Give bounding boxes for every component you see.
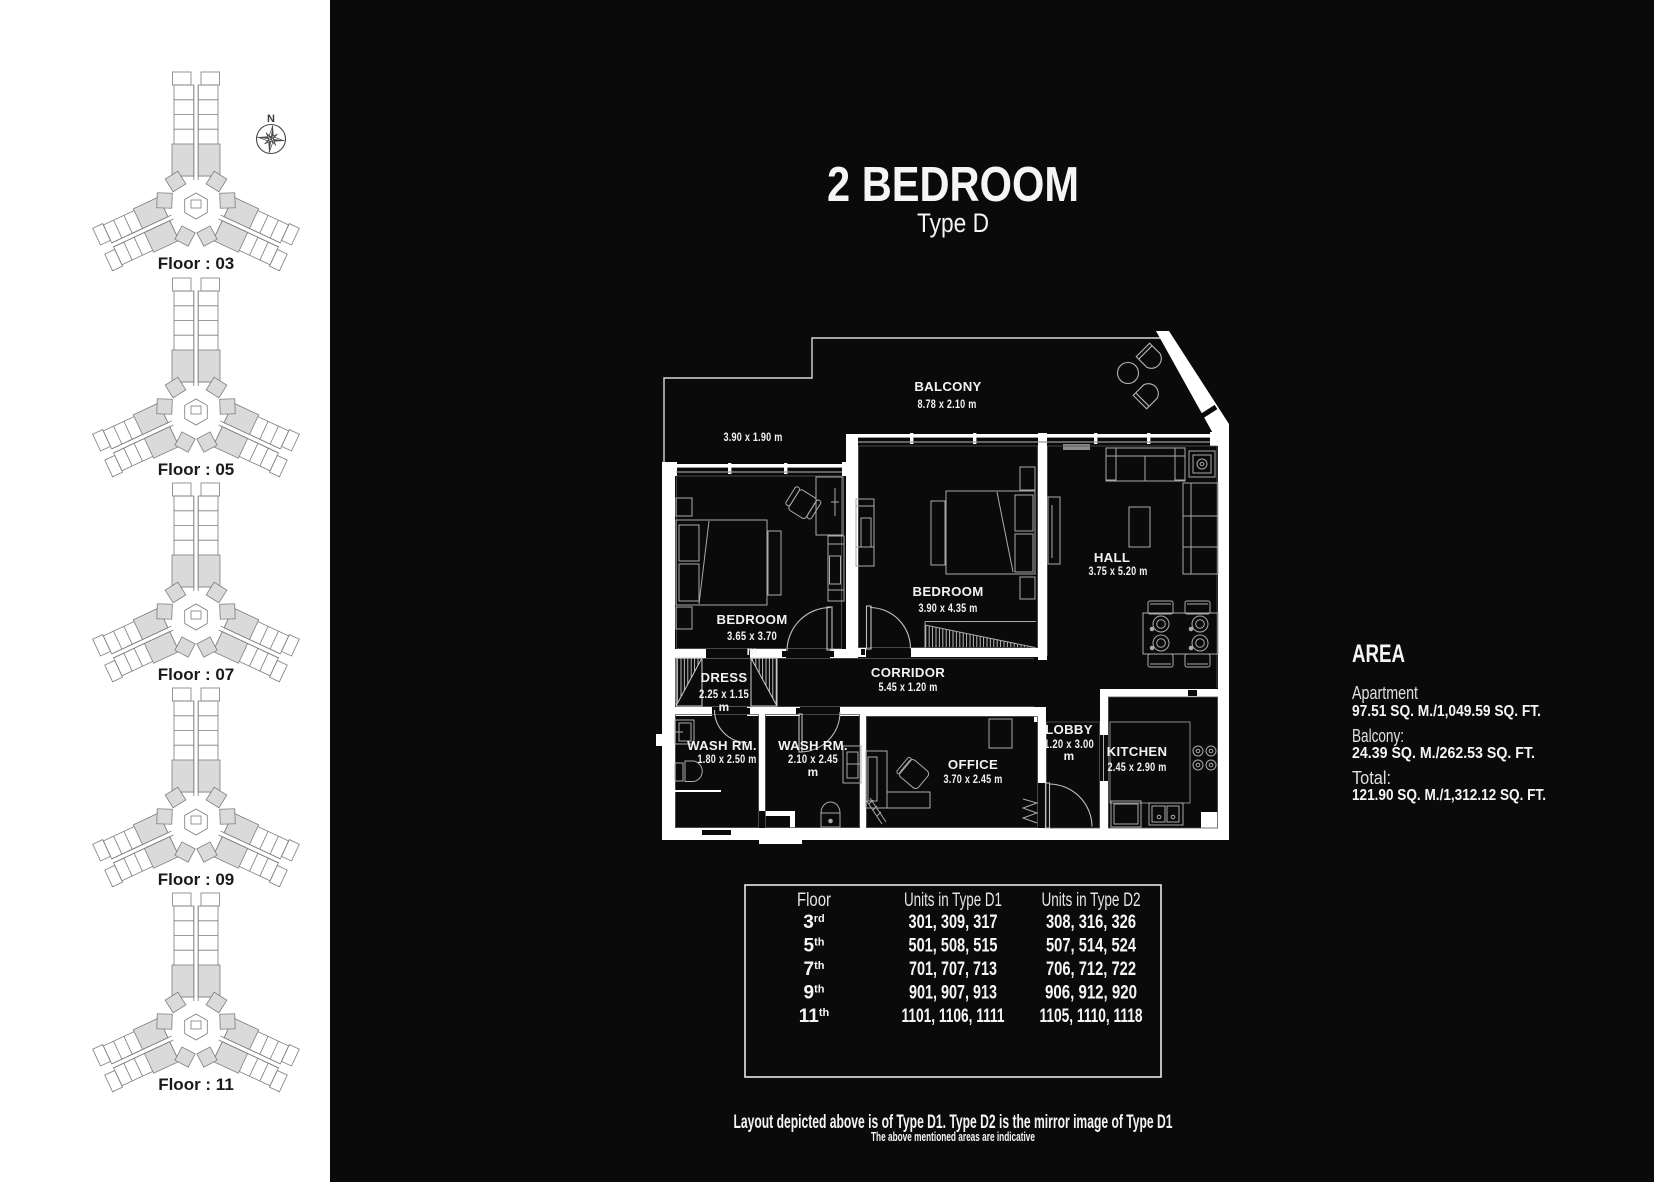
svg-text:BEDROOM: BEDROOM — [717, 612, 788, 627]
svg-text:m: m — [719, 700, 730, 714]
svg-text:HALL: HALL — [1094, 550, 1130, 565]
svg-text:OFFICE: OFFICE — [948, 757, 998, 772]
svg-text:Floor : 05: Floor : 05 — [158, 460, 235, 479]
svg-text:m: m — [1064, 749, 1075, 763]
svg-text:24.39 SQ. M./262.53 SQ. FT.: 24.39 SQ. M./262.53 SQ. FT. — [1352, 745, 1535, 762]
svg-text:3.90 x 1.90 m: 3.90 x 1.90 m — [724, 430, 783, 444]
svg-text:121.90 SQ. M./1,312.12 SQ. FT.: 121.90 SQ. M./1,312.12 SQ. FT. — [1352, 787, 1546, 804]
svg-text:5.45 x 1.20 m: 5.45 x 1.20 m — [879, 680, 938, 694]
svg-text:CORRIDOR: CORRIDOR — [871, 665, 945, 680]
svg-text:Floor : 09: Floor : 09 — [158, 870, 235, 889]
svg-text:The above mentioned areas are: The above mentioned areas are indicative — [871, 1130, 1035, 1144]
svg-text:KITCHEN: KITCHEN — [1107, 744, 1168, 759]
svg-text:2.10 x 2.45: 2.10 x 2.45 — [788, 752, 838, 766]
svg-text:BALCONY: BALCONY — [914, 379, 981, 394]
svg-text:Apartment: Apartment — [1352, 683, 1418, 703]
svg-text:3.90 x 4.35 m: 3.90 x 4.35 m — [919, 601, 978, 615]
svg-text:Floor : 11: Floor : 11 — [158, 1075, 234, 1094]
svg-text:WASH RM.: WASH RM. — [687, 738, 757, 753]
svg-text:701, 707, 713: 701, 707, 713 — [909, 959, 997, 980]
svg-text:8.78 x 2.10 m: 8.78 x 2.10 m — [918, 397, 977, 411]
svg-text:901, 907, 913: 901, 907, 913 — [909, 983, 997, 1004]
svg-text:N: N — [267, 113, 275, 125]
svg-text:308, 316, 326: 308, 316, 326 — [1046, 912, 1136, 933]
svg-text:Units in Type D1: Units in Type D1 — [904, 890, 1002, 911]
svg-text:Floor : 03: Floor : 03 — [158, 254, 235, 273]
svg-text:3.65 x 3.70: 3.65 x 3.70 — [727, 629, 777, 643]
svg-text:m: m — [747, 644, 758, 658]
svg-text:3.70 x 2.45 m: 3.70 x 2.45 m — [944, 772, 1003, 786]
svg-text:BEDROOM: BEDROOM — [913, 584, 984, 599]
svg-text:507, 514, 524: 507, 514, 524 — [1046, 936, 1136, 957]
svg-text:m: m — [808, 765, 819, 779]
svg-text:Floor : 07: Floor : 07 — [158, 665, 235, 684]
svg-text:WASH RM.: WASH RM. — [778, 738, 848, 753]
svg-text:AREA: AREA — [1352, 640, 1405, 668]
svg-text:906, 912, 920: 906, 912, 920 — [1045, 983, 1137, 1004]
svg-text:Units in Type D2: Units in Type D2 — [1042, 890, 1141, 911]
svg-text:Type D: Type D — [917, 208, 989, 238]
svg-text:1101, 1106, 1111: 1101, 1106, 1111 — [902, 1006, 1005, 1027]
svg-text:2.45 x 2.90 m: 2.45 x 2.90 m — [1108, 760, 1167, 774]
svg-text:1105, 1110, 1118: 1105, 1110, 1118 — [1040, 1006, 1143, 1027]
svg-text:706, 712, 722: 706, 712, 722 — [1046, 959, 1136, 980]
svg-text:LOBBY: LOBBY — [1045, 722, 1093, 737]
svg-text:3.75 x 5.20 m: 3.75 x 5.20 m — [1089, 564, 1148, 578]
svg-text:Balcony:: Balcony: — [1352, 726, 1404, 746]
svg-text:1.80 x 2.50 m: 1.80 x 2.50 m — [698, 752, 757, 766]
svg-text:2.25 x 1.15: 2.25 x 1.15 — [699, 687, 749, 701]
svg-text:501, 508, 515: 501, 508, 515 — [909, 936, 998, 957]
svg-text:97.51 SQ. M./1,049.59 SQ. FT.: 97.51 SQ. M./1,049.59 SQ. FT. — [1352, 703, 1541, 720]
svg-text:2 BEDROOM: 2 BEDROOM — [827, 158, 1079, 212]
svg-text:DRESS: DRESS — [701, 670, 748, 685]
svg-text:Total:: Total: — [1352, 768, 1391, 788]
svg-text:Floor: Floor — [797, 890, 832, 911]
svg-text:301, 309, 317: 301, 309, 317 — [909, 912, 998, 933]
